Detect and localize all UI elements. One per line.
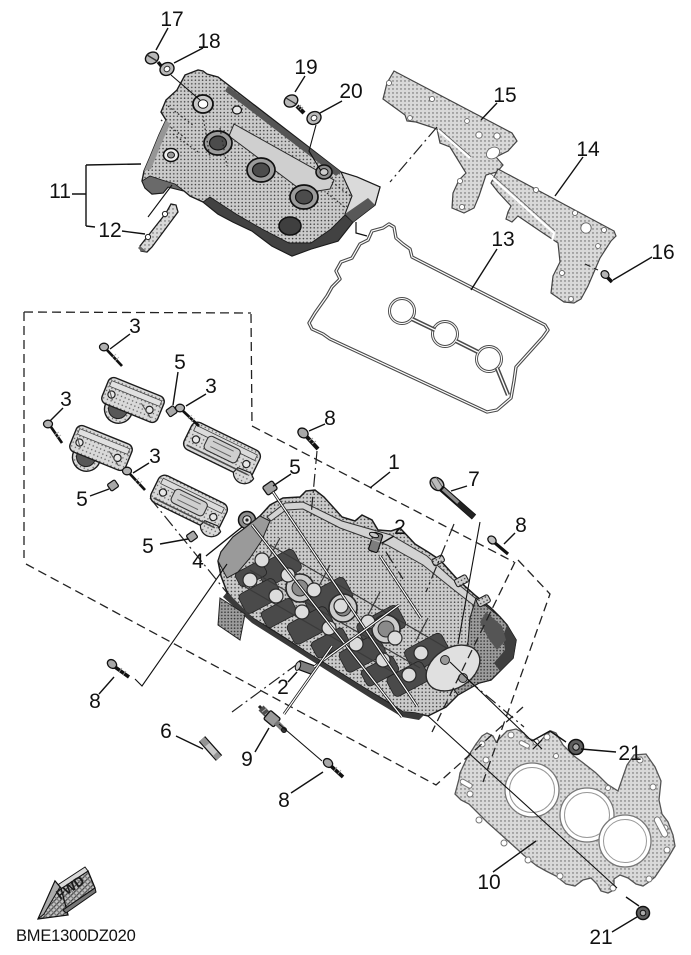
svg-text:16: 16 bbox=[651, 241, 674, 264]
svg-text:10: 10 bbox=[477, 871, 500, 894]
svg-text:8: 8 bbox=[278, 789, 290, 812]
svg-text:2: 2 bbox=[277, 676, 289, 699]
svg-text:18: 18 bbox=[197, 30, 220, 53]
svg-text:8: 8 bbox=[324, 407, 336, 430]
svg-text:8: 8 bbox=[515, 514, 527, 537]
svg-text:11: 11 bbox=[49, 180, 71, 203]
svg-text:17: 17 bbox=[160, 8, 183, 31]
svg-text:3: 3 bbox=[60, 388, 72, 411]
svg-text:5: 5 bbox=[289, 456, 301, 479]
svg-text:8: 8 bbox=[89, 690, 101, 713]
svg-text:20: 20 bbox=[339, 80, 362, 103]
svg-text:14: 14 bbox=[576, 138, 600, 161]
svg-text:5: 5 bbox=[76, 488, 88, 511]
svg-text:5: 5 bbox=[174, 351, 186, 374]
svg-text:21: 21 bbox=[618, 742, 641, 765]
svg-text:7: 7 bbox=[468, 468, 480, 491]
svg-text:19: 19 bbox=[294, 56, 317, 79]
svg-text:BME1300DZ020: BME1300DZ020 bbox=[16, 927, 136, 945]
svg-text:3: 3 bbox=[149, 445, 161, 468]
svg-text:2: 2 bbox=[394, 516, 406, 539]
svg-text:5: 5 bbox=[142, 535, 154, 558]
svg-text:13: 13 bbox=[491, 228, 514, 251]
svg-text:4: 4 bbox=[192, 550, 204, 573]
svg-text:12: 12 bbox=[98, 219, 121, 242]
svg-text:3: 3 bbox=[129, 315, 141, 338]
svg-text:1: 1 bbox=[388, 451, 400, 474]
svg-text:21: 21 bbox=[589, 926, 612, 949]
svg-text:3: 3 bbox=[205, 375, 217, 398]
svg-text:6: 6 bbox=[160, 720, 172, 743]
svg-text:9: 9 bbox=[241, 748, 253, 771]
svg-text:15: 15 bbox=[493, 84, 516, 107]
